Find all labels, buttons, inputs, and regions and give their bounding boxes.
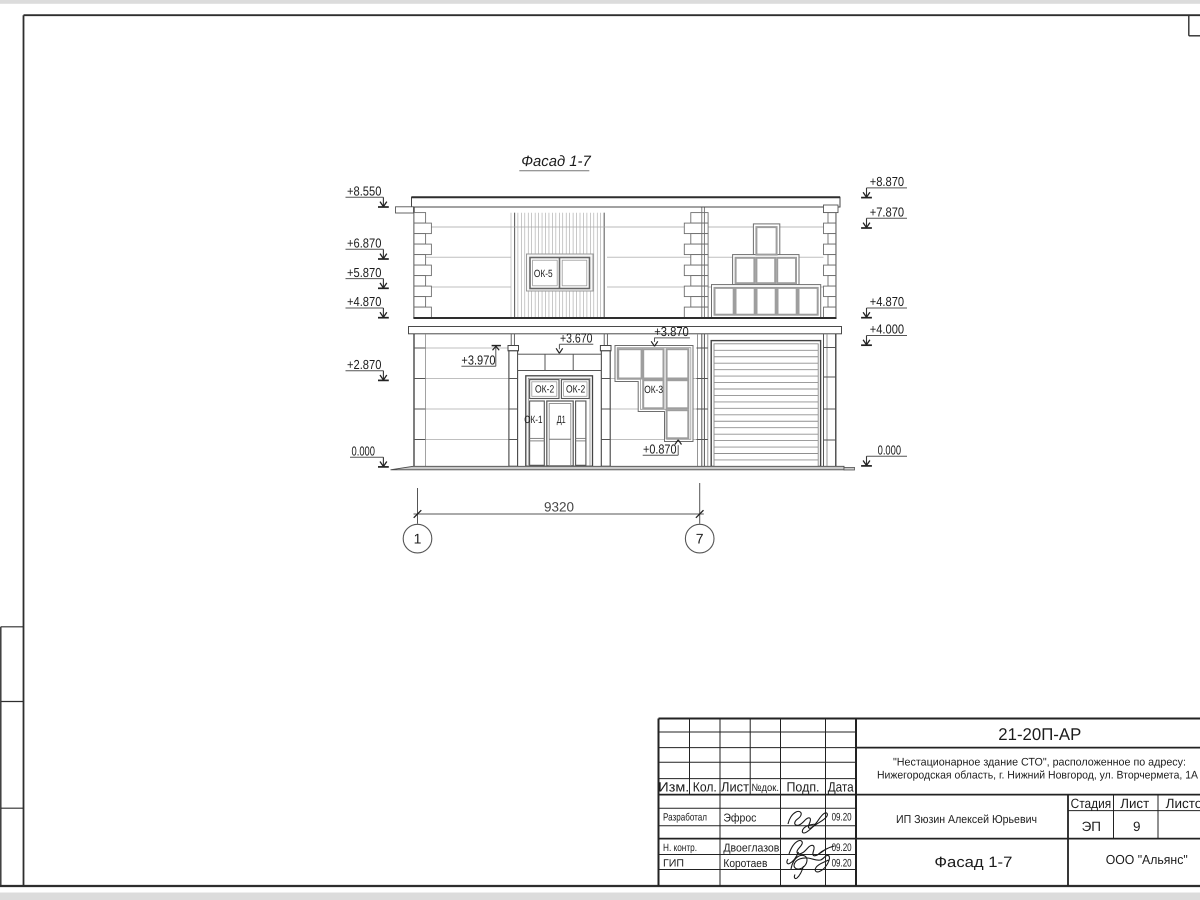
svg-text:9320: 9320 — [544, 500, 574, 515]
svg-text:+8.870: +8.870 — [870, 174, 904, 189]
svg-text:Фасад 1-7: Фасад 1-7 — [934, 854, 1012, 871]
svg-text:+3.870: +3.870 — [654, 324, 689, 339]
svg-text:+7.870: +7.870 — [870, 205, 904, 220]
svg-text:0.000: 0.000 — [352, 443, 376, 458]
svg-text:Коротаев: Коротаев — [723, 858, 767, 870]
svg-text:ЭП: ЭП — [1082, 819, 1101, 834]
svg-text:09.20: 09.20 — [832, 857, 852, 869]
svg-text:+4.870: +4.870 — [347, 294, 381, 309]
svg-text:Стадия: Стадия — [1071, 796, 1112, 811]
svg-text:Эфрос: Эфрос — [723, 812, 756, 824]
svg-text:ГИП: ГИП — [663, 857, 684, 869]
svg-text:Н. контр.: Н. контр. — [663, 842, 697, 854]
svg-text:ОК-2: ОК-2 — [566, 383, 585, 395]
svg-text:1: 1 — [414, 531, 422, 547]
svg-text:Листов: Листов — [1166, 796, 1200, 811]
svg-text:+3.970: +3.970 — [461, 352, 495, 367]
svg-text:ОК-1: ОК-1 — [524, 414, 542, 426]
svg-text:Нижегородская область, г. Нижн: Нижегородская область, г. Нижний Новгоро… — [877, 770, 1199, 782]
svg-text:ИП Зюзин Алексей Юрьевич: ИП Зюзин Алексей Юрьевич — [896, 814, 1037, 826]
svg-text:09.20: 09.20 — [832, 842, 852, 854]
svg-text:ОК-5: ОК-5 — [534, 268, 553, 280]
svg-text:"Нестационарное здание СТО", р: "Нестационарное здание СТО", расположенн… — [893, 756, 1186, 768]
svg-text:ОК-3: ОК-3 — [644, 384, 663, 396]
svg-text:21-20П-АР: 21-20П-АР — [998, 725, 1081, 744]
svg-text:Лист: Лист — [1120, 796, 1149, 811]
svg-text:+4.000: +4.000 — [870, 322, 904, 337]
svg-text:Дата: Дата — [828, 779, 854, 794]
svg-text:Разработал: Разработал — [663, 812, 707, 824]
svg-text:7: 7 — [696, 531, 704, 547]
svg-text:Фасад 1-7: Фасад 1-7 — [521, 153, 591, 170]
svg-text:9: 9 — [1133, 819, 1141, 834]
svg-text:+3.670: +3.670 — [560, 330, 593, 345]
svg-text:+4.870: +4.870 — [870, 294, 904, 309]
svg-text:Изм.: Изм. — [658, 779, 689, 794]
svg-text:+6.870: +6.870 — [347, 236, 381, 251]
svg-text:№док.: №док. — [751, 782, 779, 794]
svg-text:ООО "Альянс": ООО "Альянс" — [1106, 852, 1188, 867]
svg-text:+5.870: +5.870 — [347, 265, 381, 280]
svg-text:Д1: Д1 — [557, 414, 566, 426]
svg-text:Кол.: Кол. — [693, 779, 717, 794]
svg-text:09.20: 09.20 — [832, 812, 852, 824]
svg-text:Лист: Лист — [721, 779, 749, 794]
svg-text:+8.550: +8.550 — [347, 184, 381, 199]
svg-text:+2.870: +2.870 — [347, 357, 381, 372]
svg-text:Двоеглазов: Двоеглазов — [723, 842, 779, 854]
svg-text:+0.870: +0.870 — [643, 441, 677, 456]
svg-text:Подп.: Подп. — [787, 779, 820, 794]
svg-text:ОК-2: ОК-2 — [535, 383, 554, 395]
svg-text:0.000: 0.000 — [878, 442, 902, 457]
